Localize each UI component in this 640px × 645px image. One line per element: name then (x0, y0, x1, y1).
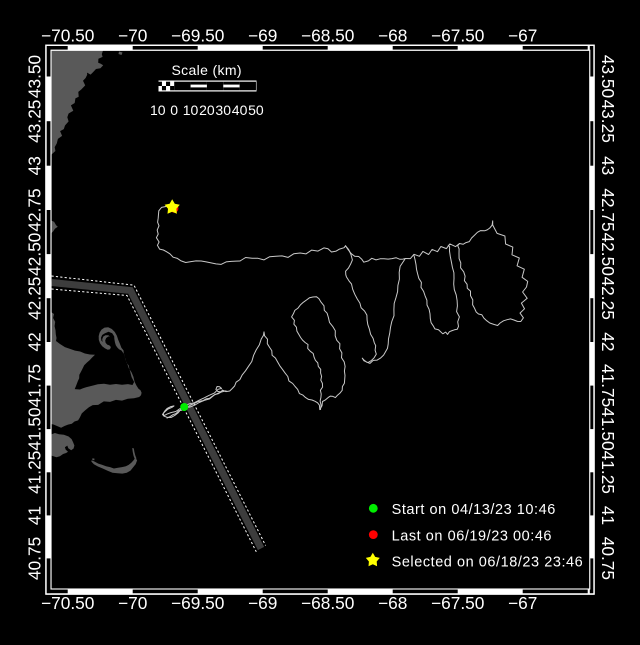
svg-text:30: 30 (215, 102, 231, 118)
svg-text:−67: −67 (508, 593, 537, 613)
svg-text:43.25: 43.25 (25, 100, 45, 143)
svg-text:−69: −69 (248, 26, 277, 46)
svg-text:Last on 06/19/23 00:46: Last on 06/19/23 00:46 (392, 528, 552, 544)
svg-text:40.75: 40.75 (598, 537, 618, 580)
svg-text:42.25: 42.25 (25, 277, 45, 320)
svg-text:42: 42 (25, 332, 45, 351)
svg-text:Selected on 06/18/23 23:46: Selected on 06/18/23 23:46 (392, 555, 584, 571)
svg-text:−69.50: −69.50 (171, 26, 224, 46)
svg-text:−67: −67 (508, 26, 537, 46)
svg-text:50: 50 (248, 102, 264, 118)
svg-text:43: 43 (598, 156, 618, 175)
svg-text:41.75: 41.75 (598, 364, 618, 407)
svg-text:41.50: 41.50 (25, 407, 45, 450)
svg-text:41.50: 41.50 (598, 407, 618, 450)
svg-text:42.75: 42.75 (25, 188, 45, 231)
svg-text:−67.50: −67.50 (431, 26, 484, 46)
svg-text:20: 20 (199, 102, 215, 118)
svg-text:−70.50: −70.50 (41, 593, 94, 613)
svg-text:42.50: 42.50 (25, 233, 45, 276)
svg-text:43: 43 (25, 156, 45, 175)
svg-text:−69: −69 (248, 593, 277, 613)
svg-text:41.25: 41.25 (25, 451, 45, 494)
svg-text:40: 40 (232, 102, 248, 118)
svg-text:0: 0 (170, 102, 178, 118)
svg-text:42.75: 42.75 (598, 188, 618, 231)
svg-text:−70.50: −70.50 (41, 26, 94, 46)
svg-text:43.25: 43.25 (598, 100, 618, 143)
svg-text:41: 41 (598, 506, 618, 525)
svg-text:40.75: 40.75 (25, 537, 45, 580)
svg-text:Start on 04/13/23 10:46: Start on 04/13/23 10:46 (392, 502, 556, 518)
svg-text:43.50: 43.50 (598, 55, 618, 98)
svg-text:−68.50: −68.50 (301, 593, 354, 613)
svg-text:41.75: 41.75 (25, 364, 45, 407)
svg-text:−68: −68 (378, 26, 407, 46)
svg-text:−68: −68 (378, 593, 407, 613)
svg-text:−70: −70 (118, 593, 147, 613)
svg-text:41: 41 (25, 506, 45, 525)
svg-text:−70: −70 (118, 26, 147, 46)
svg-text:Scale (km): Scale (km) (171, 62, 241, 78)
svg-text:−67.50: −67.50 (431, 593, 484, 613)
svg-text:42: 42 (598, 332, 618, 351)
svg-text:10: 10 (183, 102, 199, 118)
svg-text:10: 10 (150, 102, 166, 118)
svg-text:−68.50: −68.50 (301, 26, 354, 46)
svg-text:42.50: 42.50 (598, 233, 618, 276)
svg-text:43.50: 43.50 (25, 55, 45, 98)
svg-text:41.25: 41.25 (598, 451, 618, 494)
svg-text:42.25: 42.25 (598, 277, 618, 320)
svg-text:−69.50: −69.50 (171, 593, 224, 613)
